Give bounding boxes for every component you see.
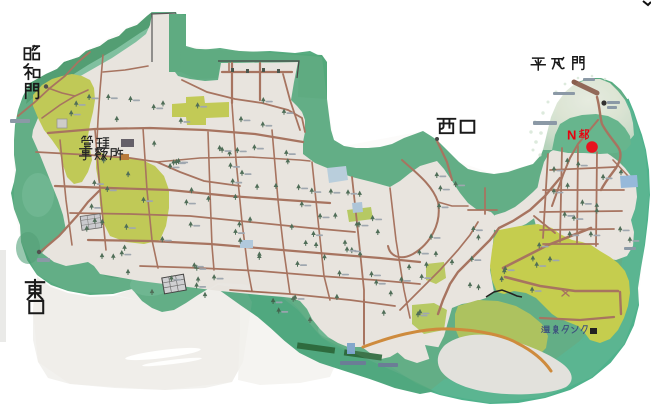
svg-text:N: N xyxy=(567,128,576,143)
